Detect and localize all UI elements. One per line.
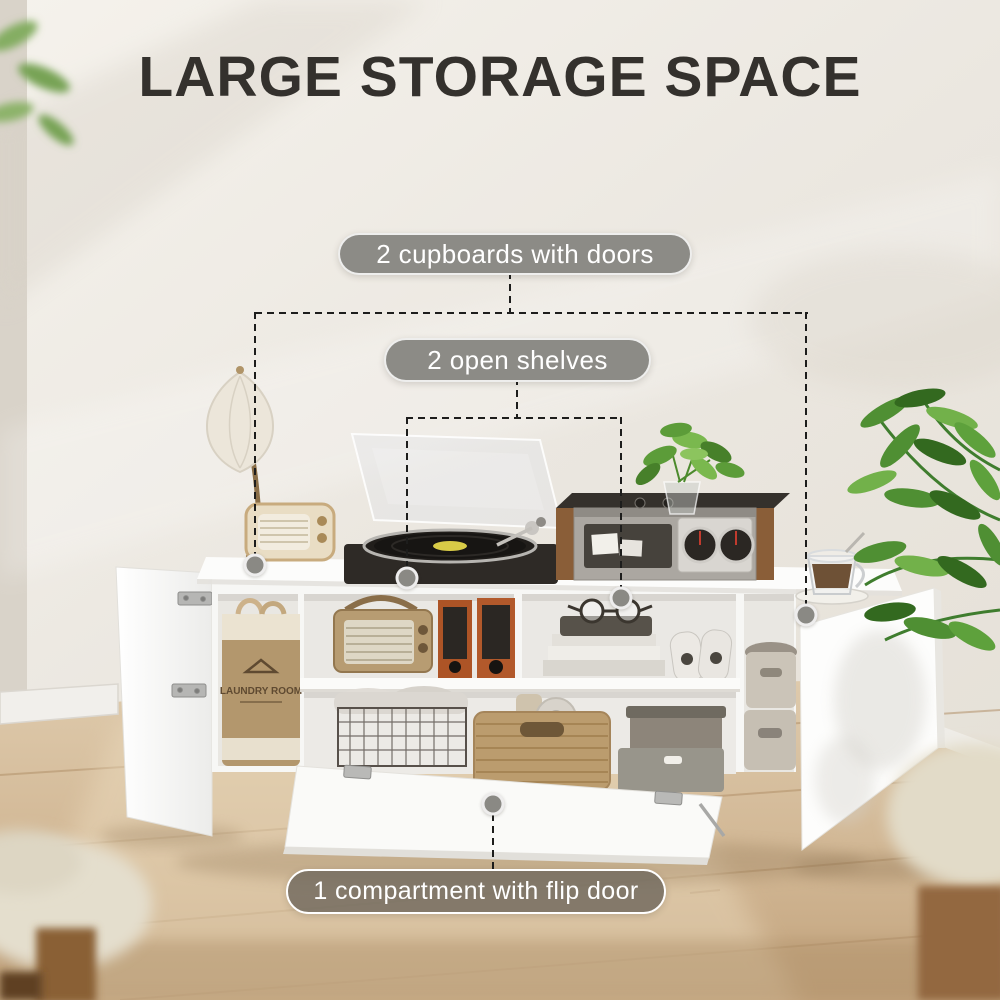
endpoint-dot-cupboard-right	[795, 604, 818, 627]
connector-shelves-right-drop	[620, 417, 622, 589]
connector-shelves-horizontal	[406, 417, 622, 419]
callout-overlay: LARGE STORAGE SPACE 2 cupboards with doo…	[0, 0, 1000, 1000]
connector-flip-stub	[492, 814, 494, 870]
callout-pill-cupboards: 2 cupboards with doors	[338, 233, 692, 275]
callout-pill-shelves: 2 open shelves	[384, 338, 651, 382]
endpoint-dot-shelf-right	[610, 587, 633, 610]
endpoint-dot-shelf-left	[396, 567, 419, 590]
callout-pill-flip-door: 1 compartment with flip door	[286, 869, 666, 914]
connector-cupboards-horizontal	[255, 312, 808, 314]
connector-cupboards-right-drop	[805, 312, 807, 606]
connector-shelves-stub	[516, 378, 518, 418]
connector-cupboards-stub	[509, 272, 511, 314]
product-infographic: LAUNDRY ROOM	[0, 0, 1000, 1000]
endpoint-dot-cupboard-left	[244, 554, 267, 577]
page-title: LARGE STORAGE SPACE	[0, 44, 1000, 110]
connector-shelves-left-drop	[406, 417, 408, 569]
endpoint-dot-flip-door	[482, 793, 505, 816]
connector-cupboards-left-drop	[254, 312, 256, 556]
